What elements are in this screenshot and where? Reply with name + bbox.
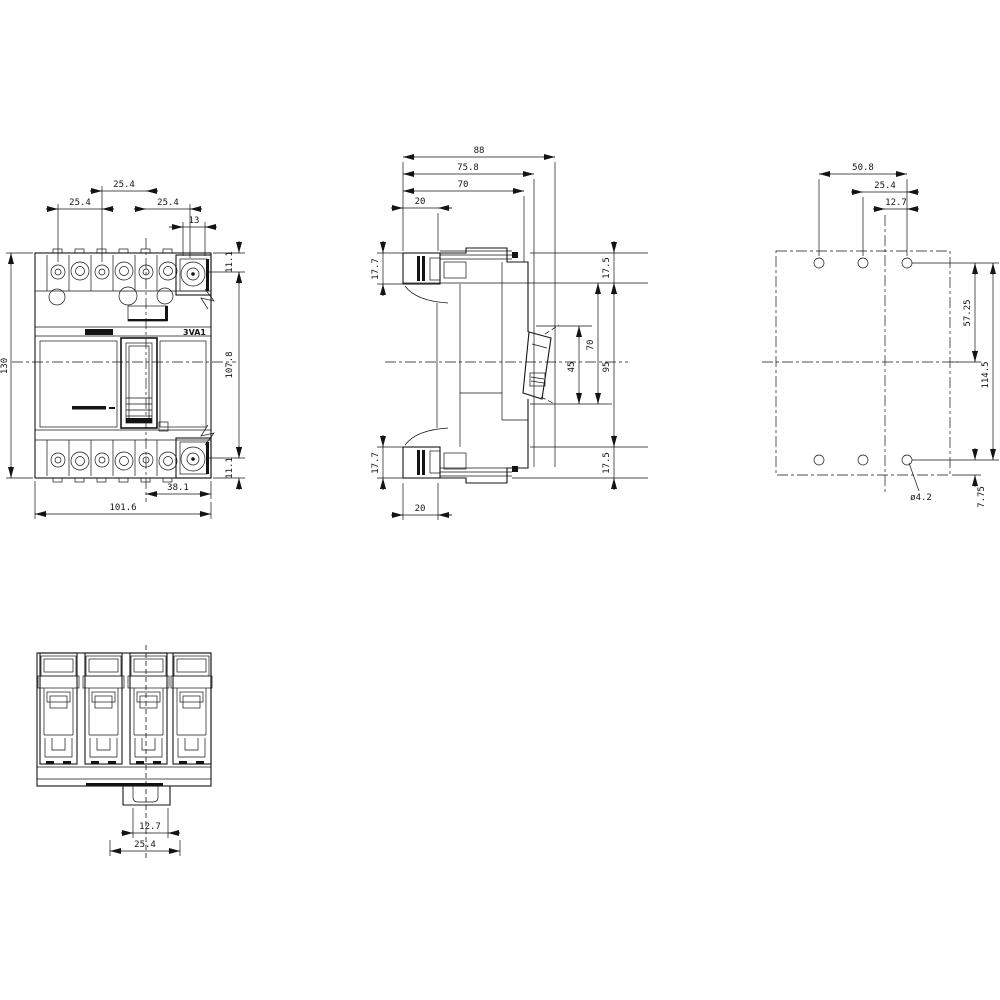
- type-code-smudge: [72, 406, 106, 410]
- dimension-drawing: 3VA1: [0, 0, 1000, 1000]
- svg-text:12.7: 12.7: [885, 198, 907, 208]
- bottom-modules: [38, 653, 212, 764]
- bottom-din-tab: [123, 786, 170, 805]
- rear-view: 50.8 25.4 12.7 57.25 114.5: [762, 163, 999, 508]
- front-toggle-area: [40, 338, 206, 431]
- front-view: 3VA1: [0, 180, 245, 519]
- dim-front-offset-top: 11.1: [209, 241, 245, 284]
- dim-front-pitch-center: 25.4: [90, 180, 158, 191]
- dim-front-height: 130: [0, 253, 33, 478]
- svg-text:25.4: 25.4: [113, 180, 135, 190]
- dim-front-pitch-left: 25.4: [46, 186, 114, 262]
- front-test-holes: [49, 287, 173, 305]
- dim-front-offset-bottom: 11.1: [213, 446, 245, 490]
- svg-text:57.25: 57.25: [963, 299, 973, 326]
- dim-side-step-top: 17.5: [602, 241, 614, 295]
- dim-rear-hole-offset: 12.7: [873, 198, 919, 209]
- dim-side-front-height: 95: [602, 283, 614, 447]
- svg-text:13: 13: [189, 216, 200, 226]
- dim-front-hole-pitch-vertical: 107.8: [209, 272, 245, 458]
- svg-text:45: 45: [567, 362, 577, 373]
- front-view-outline: [35, 253, 211, 478]
- svg-text:17.7: 17.7: [371, 452, 381, 474]
- front-extended-terminal-top: [176, 255, 214, 309]
- front-top-terminals: [47, 249, 177, 291]
- rear-hole-diameter-callout: ø4.2: [909, 463, 932, 503]
- svg-text:38.1: 38.1: [167, 483, 189, 493]
- bottom-module-1: [38, 653, 79, 764]
- bottom-module-3: [128, 653, 169, 764]
- svg-text:114.5: 114.5: [981, 361, 991, 388]
- bottom-module-4: [171, 653, 212, 764]
- hole-diameter-label: ø4.2: [910, 493, 932, 503]
- svg-text:101.6: 101.6: [109, 503, 136, 513]
- svg-text:25.4: 25.4: [134, 840, 156, 850]
- dim-front-center-to-edge: 38.1: [146, 481, 211, 499]
- front-rating-window: [128, 306, 168, 321]
- dim-rear-hole-span: 50.8: [819, 163, 907, 174]
- dim-side-terminal-depth-top: 20: [391, 197, 452, 208]
- rear-mounting-holes: [814, 258, 912, 465]
- svg-text:107.8: 107.8: [225, 351, 235, 378]
- svg-text:95: 95: [602, 362, 612, 373]
- drawing-page: 3VA1: [0, 0, 1000, 1000]
- rear-outline: [776, 251, 950, 475]
- svg-text:11.1: 11.1: [225, 457, 235, 479]
- nameplate-block: [85, 329, 113, 335]
- bottom-view: 12.7 25.4: [37, 645, 212, 858]
- svg-text:25.4: 25.4: [69, 198, 91, 208]
- svg-text:17.5: 17.5: [602, 257, 612, 279]
- dim-rear-hole-edge: 7.75: [975, 448, 987, 508]
- product-label: 3VA1: [183, 328, 206, 337]
- bottom-module-2: [83, 653, 124, 764]
- dim-side-depth-handle: 75.8: [403, 163, 534, 174]
- side-terminal-bottom: [403, 447, 518, 478]
- dim-front-terminal-width: 13: [169, 216, 217, 256]
- dim-side-terminal-depth-bottom: 20: [391, 504, 452, 515]
- side-view: 88 75.8 70 20 17.7: [371, 146, 648, 520]
- dim-side-handle-height: 70: [586, 283, 598, 404]
- dim-rear-hole-pitch: 25.4: [851, 181, 919, 192]
- svg-text:88: 88: [474, 146, 485, 156]
- svg-text:130: 130: [0, 358, 10, 374]
- dim-bottom-slot-width: 12.7: [121, 808, 180, 838]
- svg-text:75.8: 75.8: [457, 163, 479, 173]
- svg-text:70: 70: [458, 180, 469, 190]
- dim-bottom-slot-pitch: 25.4: [110, 840, 180, 856]
- svg-text:11.1: 11.1: [225, 251, 235, 273]
- side-toggle-handle: [523, 325, 559, 404]
- bottom-envelope: [37, 653, 211, 787]
- dim-side-terminal-height-bottom: 17.7: [371, 435, 383, 490]
- svg-text:12.7: 12.7: [139, 822, 161, 832]
- svg-text:25.4: 25.4: [157, 198, 179, 208]
- dim-side-depth-body: 70: [403, 180, 524, 191]
- svg-text:20: 20: [415, 197, 426, 207]
- side-terminal-top: [403, 251, 518, 284]
- svg-text:17.7: 17.7: [371, 258, 381, 280]
- dim-side-terminal-height-top: 17.7: [371, 241, 383, 296]
- front-extended-terminal-bottom: [176, 425, 214, 478]
- svg-text:50.8: 50.8: [852, 163, 874, 173]
- dim-rear-hole-span-vertical: 114.5: [981, 263, 993, 460]
- dim-side-step-bottom: 17.5: [602, 435, 614, 490]
- svg-text:7.75: 7.75: [977, 486, 987, 508]
- dim-rear-hole-to-center: 57.25: [963, 263, 975, 362]
- svg-text:20: 20: [415, 504, 426, 514]
- toggle-handle: [121, 338, 157, 428]
- front-bottom-terminals: [47, 440, 177, 482]
- dim-side-depth-total: 88: [403, 146, 555, 157]
- svg-text:70: 70: [586, 340, 596, 351]
- svg-text:17.5: 17.5: [602, 452, 612, 474]
- svg-text:25.4: 25.4: [874, 181, 896, 191]
- dim-side-handle-span: 45: [567, 326, 579, 404]
